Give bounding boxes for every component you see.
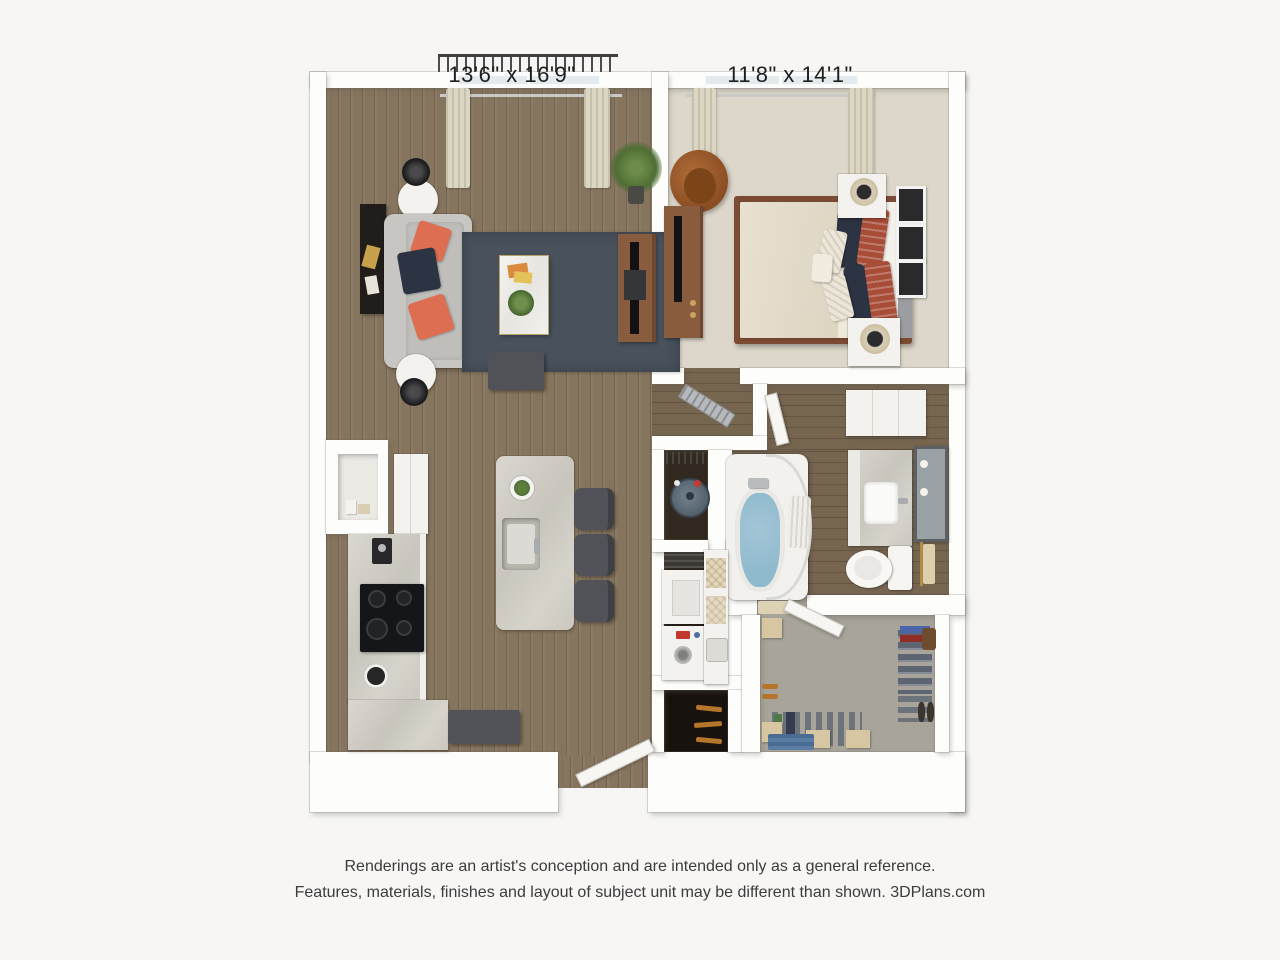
gallery-frame-3 — [896, 260, 926, 298]
hand-towel — [923, 544, 935, 584]
burner — [368, 590, 386, 608]
table-plant — [508, 290, 534, 316]
dresser-knob — [690, 300, 696, 306]
bar-stool-3 — [574, 580, 614, 622]
closet-bag — [922, 628, 936, 650]
sconce-light — [920, 460, 928, 468]
floor-lamp — [400, 378, 428, 406]
table-lamp — [402, 158, 430, 186]
living-curtain-left — [446, 88, 470, 188]
laundry-shelf-dark — [664, 552, 704, 568]
detergent-cap — [694, 632, 700, 638]
vanity-sink — [864, 482, 898, 524]
toilet-seat — [854, 556, 882, 580]
disclaimer-line-2: Features, materials, finishes and layout… — [0, 884, 1280, 902]
detergent-box — [676, 631, 690, 639]
burner-3 — [366, 618, 388, 640]
burner-2 — [396, 590, 412, 606]
wall-bath-bottom-b — [807, 595, 965, 615]
bedroom-dimensions-label: 11'8" x 14'1" — [695, 62, 885, 88]
heater-cap — [686, 492, 694, 500]
bar-stool — [574, 488, 614, 530]
bedroom-curtain-right — [848, 88, 874, 188]
sconce-light-2 — [920, 488, 928, 496]
burner-4 — [396, 620, 412, 636]
wall-walkin-left — [742, 615, 760, 752]
wall-coat-right — [728, 690, 742, 752]
bedroom-dresser — [664, 206, 703, 338]
shoes-pair — [918, 702, 925, 722]
dresser-knob-2 — [690, 312, 696, 318]
wall-left — [310, 72, 326, 762]
floor-plan-rendering: 13'6" x 16'9" 11'8" x 14'1" Renderings a… — [0, 0, 1280, 960]
living-room-dimensions-label: 13'6" x 16'9" — [417, 62, 607, 88]
closet-hanger-left-2 — [762, 694, 778, 699]
island-faucet — [534, 538, 539, 554]
entry-bench — [448, 710, 520, 744]
egg-chair-seat — [684, 168, 716, 204]
washer-knob — [674, 646, 692, 664]
sofa-pillow-navy — [397, 247, 442, 295]
niche-item-2 — [358, 504, 370, 514]
storage-box — [762, 618, 782, 638]
wall-hall-bottom — [652, 436, 767, 450]
bedroom-doorway-floor — [684, 368, 740, 384]
linen-cabinet — [846, 390, 926, 436]
disclaimer-line-1: Renderings are an artist's conception an… — [0, 858, 1280, 876]
wall-bedroom-bottom-b — [740, 368, 965, 384]
shower-curtain — [787, 495, 812, 548]
storage-box-4 — [846, 730, 870, 748]
wall-right — [949, 72, 965, 812]
bed-pillow-white — [811, 253, 833, 282]
heater-pipe — [674, 480, 680, 486]
shoes-pair-2 — [927, 702, 934, 722]
plant-pot — [628, 186, 644, 204]
folded-jeans — [768, 734, 814, 750]
laundry-basket — [706, 638, 728, 662]
gallery-frame — [896, 186, 926, 224]
coffee-maker-top — [378, 544, 386, 552]
upper-cabinet — [394, 454, 428, 534]
kitchen-counter-bottom — [348, 700, 448, 750]
wall-bottom-left — [310, 752, 558, 812]
ottoman-bench — [488, 352, 544, 390]
wall-bottom-right — [648, 752, 965, 812]
towel-stack-2 — [706, 596, 726, 624]
bar-stool-2 — [574, 534, 614, 576]
niche-item — [346, 500, 356, 514]
gallery-frame-2 — [896, 224, 926, 262]
heater-vent-grille — [666, 452, 706, 464]
island-plant — [514, 480, 530, 496]
wall-waterheater-bottom — [652, 540, 708, 552]
sink-faucet — [898, 498, 908, 504]
washer-upper-lid — [672, 580, 700, 616]
living-curtain-right — [584, 88, 610, 188]
island-sink-basin — [507, 524, 535, 564]
heater-valve-red — [694, 480, 701, 487]
magazine-2 — [514, 271, 533, 284]
bathroom-mirror — [914, 446, 948, 542]
closet-hanger-left — [762, 684, 778, 689]
tv-mount — [624, 270, 646, 300]
tub-faucet — [748, 478, 768, 488]
towel-stack — [706, 558, 726, 588]
nightstand-lamp-2 — [860, 324, 890, 354]
nightstand-lamp — [850, 178, 878, 206]
bedroom-tv — [674, 216, 682, 302]
cake-stand — [364, 664, 388, 688]
vanity-cabinet-front — [848, 450, 860, 546]
wall-walkin-right — [935, 615, 949, 752]
